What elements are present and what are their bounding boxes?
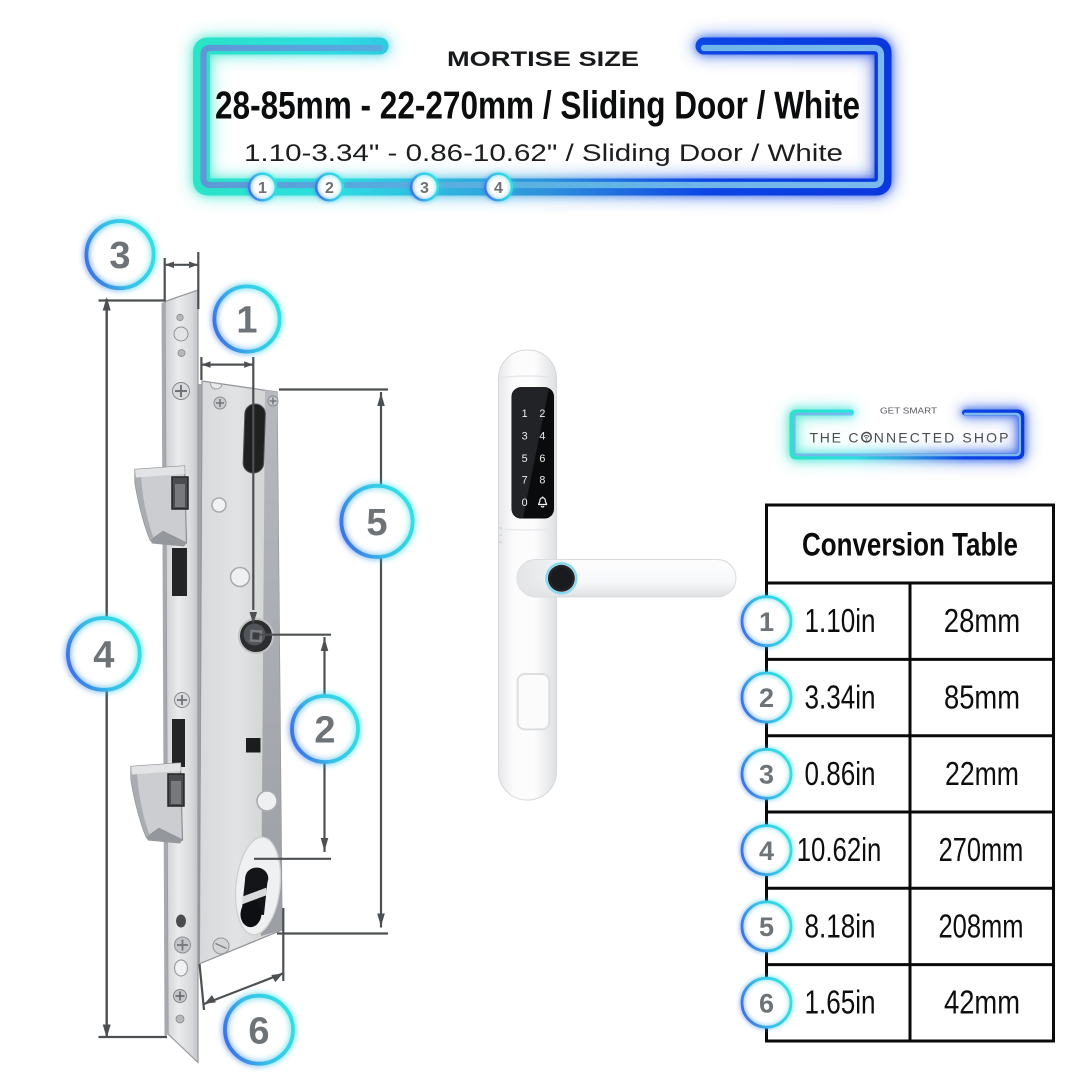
svg-text:4: 4 bbox=[93, 635, 114, 677]
svg-text:1: 1 bbox=[522, 408, 528, 420]
svg-text:1: 1 bbox=[258, 180, 267, 197]
svg-text:28-85mm - 22-270mm / Sliding D: 28-85mm - 22-270mm / Sliding Door / Whit… bbox=[215, 85, 860, 128]
svg-text:28mm: 28mm bbox=[944, 602, 1021, 639]
svg-text:1: 1 bbox=[236, 300, 257, 342]
svg-text:3.34in: 3.34in bbox=[805, 679, 876, 716]
svg-text:3: 3 bbox=[522, 431, 528, 443]
svg-text:THE C: THE C bbox=[810, 429, 859, 445]
svg-text:MORTISE SIZE: MORTISE SIZE bbox=[447, 48, 639, 71]
svg-text:270mm: 270mm bbox=[939, 831, 1024, 868]
svg-text:0: 0 bbox=[522, 497, 528, 509]
svg-text:2: 2 bbox=[325, 180, 334, 197]
svg-text:2: 2 bbox=[539, 408, 545, 420]
svg-text:4: 4 bbox=[759, 836, 774, 866]
svg-text:8.18in: 8.18in bbox=[805, 907, 876, 944]
svg-text:6: 6 bbox=[539, 453, 545, 465]
svg-text:2: 2 bbox=[759, 683, 774, 713]
svg-text:4: 4 bbox=[494, 180, 503, 197]
svg-text:5: 5 bbox=[366, 502, 387, 544]
svg-text:22mm: 22mm bbox=[945, 755, 1019, 792]
svg-text:208mm: 208mm bbox=[939, 907, 1024, 944]
svg-text:1.10-3.34" - 0.86-10.62" / Sli: 1.10-3.34" - 0.86-10.62" / Sliding Door … bbox=[244, 140, 843, 167]
svg-text:0.86in: 0.86in bbox=[805, 755, 876, 792]
svg-text:1.10in: 1.10in bbox=[805, 602, 876, 639]
svg-text:5: 5 bbox=[522, 453, 528, 465]
svg-text:3: 3 bbox=[109, 235, 130, 277]
svg-text:10.62in: 10.62in bbox=[797, 831, 882, 868]
svg-text:6: 6 bbox=[248, 1010, 269, 1052]
svg-text:7: 7 bbox=[522, 475, 528, 487]
svg-text:Conversion Table: Conversion Table bbox=[802, 527, 1018, 563]
svg-text:1: 1 bbox=[759, 607, 774, 637]
svg-text:2: 2 bbox=[314, 710, 335, 752]
svg-text:5: 5 bbox=[759, 912, 774, 942]
svg-text:8: 8 bbox=[539, 475, 545, 487]
svg-text:1.65in: 1.65in bbox=[805, 984, 876, 1021]
svg-text:6: 6 bbox=[759, 988, 774, 1018]
svg-text:NNECTED SHOP: NNECTED SHOP bbox=[874, 429, 1009, 445]
svg-text:85mm: 85mm bbox=[944, 679, 1020, 716]
svg-text:GET SMART: GET SMART bbox=[880, 407, 937, 416]
svg-text:4: 4 bbox=[539, 431, 545, 443]
svg-text:42mm: 42mm bbox=[944, 984, 1020, 1021]
svg-text:3: 3 bbox=[759, 760, 774, 790]
svg-text:3: 3 bbox=[420, 180, 429, 197]
